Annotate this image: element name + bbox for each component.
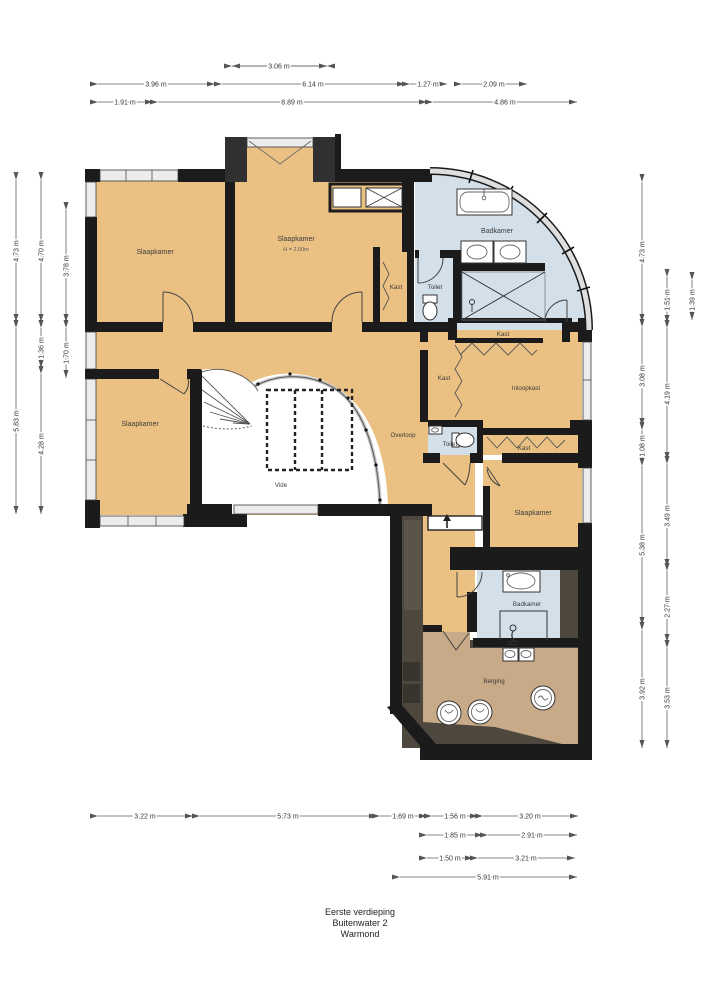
label-berging: Berging bbox=[483, 678, 505, 685]
svg-text:3.78 m: 3.78 m bbox=[64, 255, 71, 277]
dimensions-bottom: 3.22 m 5.73 m 1.69 m 1.56 m 3.20 m 1.85 … bbox=[98, 814, 578, 882]
svg-text:3.49 m: 3.49 m bbox=[665, 505, 672, 527]
label-toilet-top: Toilet bbox=[428, 284, 443, 291]
toilet-top-wc bbox=[423, 295, 437, 320]
svg-text:5.83 m: 5.83 m bbox=[14, 410, 21, 432]
sink-round-icon bbox=[531, 686, 555, 710]
svg-text:4.86 m: 4.86 m bbox=[494, 100, 516, 107]
label-slaapkamer-bl: Slaapkamer bbox=[121, 421, 159, 428]
floor-plan: Slaapkamer Slaapkamer H = 2.00m Badkamer… bbox=[0, 0, 707, 1000]
window-bottom-1 bbox=[100, 516, 184, 526]
svg-text:3.96 m: 3.96 m bbox=[145, 82, 167, 89]
title-block: Eerste verdieping Buitenwater 2 Warmond bbox=[325, 907, 395, 939]
dim-line: 3.92 m bbox=[640, 630, 647, 748]
dim-line: 2.91 m bbox=[488, 833, 577, 840]
dim-line: 4.73 m bbox=[640, 182, 647, 322]
dim-line: 4.70 m bbox=[39, 180, 46, 322]
svg-text:1.39 m: 1.39 m bbox=[690, 289, 697, 311]
svg-text:1.50 m: 1.50 m bbox=[439, 856, 461, 863]
dim-line: 3.96 m bbox=[98, 82, 215, 89]
berging-unit-1 bbox=[403, 662, 420, 681]
svg-text:2.09 m: 2.09 m bbox=[483, 82, 505, 89]
dim-line: 3.08 m bbox=[640, 327, 647, 426]
zone-dark-inner bbox=[404, 520, 421, 610]
window-left-3 bbox=[86, 379, 96, 500]
svg-text:5.91 m: 5.91 m bbox=[477, 875, 499, 882]
builtin-counter bbox=[333, 188, 361, 207]
label-slaapkamer-tm: Slaapkamer bbox=[277, 236, 315, 243]
dim-line: 3.06 m bbox=[232, 64, 327, 71]
dim-line: 1.85 m bbox=[427, 833, 483, 840]
label-badkamer-bottom: Badkamer bbox=[513, 601, 541, 608]
dim-line: 1.39 m bbox=[690, 280, 697, 320]
bathtub-bottom bbox=[503, 571, 540, 592]
dim-line: 5.91 m bbox=[400, 875, 577, 882]
svg-text:1.36 m: 1.36 m bbox=[39, 337, 46, 359]
berging-basins bbox=[503, 648, 534, 661]
label-vide: Vide bbox=[275, 482, 288, 489]
label-kast-left: Kast bbox=[438, 375, 451, 382]
svg-text:1.56 m: 1.56 m bbox=[444, 814, 466, 821]
dim-line: 4.86 m bbox=[433, 100, 577, 107]
label-height-note: H = 2.00m bbox=[283, 247, 309, 253]
svg-text:3.53 m: 3.53 m bbox=[665, 687, 672, 709]
svg-text:1.08 m: 1.08 m bbox=[640, 435, 647, 457]
dimensions-top: 3.06 m 3.96 m 6.14 m 1.27 m 2.09 m 1.91 … bbox=[98, 64, 577, 107]
svg-text:1.69 m: 1.69 m bbox=[392, 814, 414, 821]
svg-text:3.21 m: 3.21 m bbox=[515, 856, 537, 863]
svg-text:4.19 m: 4.19 m bbox=[665, 383, 672, 405]
dim-line: 3.20 m bbox=[483, 814, 578, 821]
svg-text:1.91 m: 1.91 m bbox=[114, 100, 136, 107]
dim-line: 1.36 m bbox=[39, 328, 46, 368]
double-washbasin bbox=[461, 241, 526, 263]
window-left-1 bbox=[86, 182, 96, 217]
dimensions-right: 4.73 m 3.08 m 1.08 m 5.38 m 3.92 m 1.51 … bbox=[640, 182, 697, 748]
dim-line: 2.09 m bbox=[462, 82, 527, 89]
window-left-2 bbox=[86, 332, 96, 369]
wall-bed1-bed2 bbox=[225, 182, 235, 322]
window-right-1 bbox=[583, 342, 591, 420]
dim-line: 1.08 m bbox=[640, 430, 647, 462]
svg-text:2.91 m: 2.91 m bbox=[521, 833, 543, 840]
label-slaapkamer-br: Slaapkamer bbox=[514, 510, 552, 517]
window-dormer bbox=[247, 138, 313, 147]
window-right-2 bbox=[583, 468, 591, 523]
svg-text:1.27 m: 1.27 m bbox=[417, 82, 439, 89]
wall-vide-west bbox=[190, 370, 202, 514]
svg-text:4.73 m: 4.73 m bbox=[14, 240, 21, 262]
dim-line: 1.50 m bbox=[427, 856, 473, 863]
label-toilet-mid: Toilet bbox=[443, 441, 458, 448]
dim-line: 4.73 m bbox=[14, 180, 21, 322]
zone-dark-east bbox=[560, 570, 578, 640]
dim-line: 3.78 m bbox=[64, 210, 71, 322]
builtin-closet-x bbox=[366, 188, 402, 207]
label-overloop: Overloop bbox=[390, 432, 416, 439]
label-kast-bottom: Kast bbox=[518, 445, 531, 452]
dim-line: 3.53 m bbox=[665, 648, 672, 748]
dim-line: 5.73 m bbox=[200, 814, 377, 821]
dim-line: 1.56 m bbox=[432, 814, 478, 821]
dryer-icon bbox=[468, 700, 492, 724]
dim-line: 1.91 m bbox=[98, 100, 153, 107]
title-address: Buitenwater 2 bbox=[332, 918, 387, 928]
svg-text:2.27 m: 2.27 m bbox=[665, 596, 672, 618]
loft-ladder-hatch bbox=[428, 514, 482, 530]
label-inloopkast: Inloopkast bbox=[512, 385, 540, 392]
dim-line: 8.89 m bbox=[158, 100, 427, 107]
svg-text:3.06 m: 3.06 m bbox=[268, 64, 290, 71]
svg-text:5.38 m: 5.38 m bbox=[640, 534, 647, 556]
label-kast-mid: Kast bbox=[497, 331, 510, 338]
dormer-post-right bbox=[313, 137, 335, 182]
dim-line: 4.28 m bbox=[39, 374, 46, 514]
svg-text:3.22 m: 3.22 m bbox=[134, 814, 156, 821]
dimensions-left: 4.73 m 5.83 m 4.70 m 1.36 m 4.28 m 3.78 … bbox=[14, 180, 71, 514]
dim-line: 6.14 m bbox=[222, 82, 405, 89]
svg-text:4.28 m: 4.28 m bbox=[39, 433, 46, 455]
bathtub-top bbox=[457, 189, 512, 215]
berging-unit-2 bbox=[403, 684, 420, 703]
svg-text:4.70 m: 4.70 m bbox=[39, 240, 46, 262]
svg-text:1.70 m: 1.70 m bbox=[64, 342, 71, 364]
svg-text:1.51 m: 1.51 m bbox=[665, 289, 672, 311]
dim-line: 2.27 m bbox=[665, 571, 672, 642]
label-slaapkamer-tl: Slaapkamer bbox=[136, 249, 174, 256]
window-top bbox=[100, 170, 178, 181]
label-kast-top-strip: Kast bbox=[390, 284, 403, 291]
svg-text:3.08 m: 3.08 m bbox=[640, 365, 647, 387]
title-city: Warmond bbox=[341, 929, 380, 939]
svg-text:6.14 m: 6.14 m bbox=[302, 82, 324, 89]
washer-icon bbox=[437, 701, 461, 725]
window-vide-parapet bbox=[234, 505, 318, 514]
dim-line: 1.70 m bbox=[64, 328, 71, 378]
dormer-post-left bbox=[225, 137, 247, 182]
svg-text:3.92 m: 3.92 m bbox=[640, 678, 647, 700]
svg-text:8.89 m: 8.89 m bbox=[281, 100, 303, 107]
room-slaapkamer-br bbox=[483, 460, 582, 547]
svg-text:4.73 m: 4.73 m bbox=[640, 241, 647, 263]
dim-line: 3.49 m bbox=[665, 464, 672, 567]
title-floor: Eerste verdieping bbox=[325, 907, 395, 917]
svg-text:5.73 m: 5.73 m bbox=[277, 814, 299, 821]
dim-line: 1.27 m bbox=[410, 82, 447, 89]
svg-text:3.20 m: 3.20 m bbox=[519, 814, 541, 821]
dim-line: 5.38 m bbox=[640, 466, 647, 625]
dim-line: 5.83 m bbox=[14, 328, 21, 514]
label-badkamer-top: Badkamer bbox=[481, 228, 514, 235]
dim-line: 4.19 m bbox=[665, 328, 672, 460]
dim-line: 3.21 m bbox=[478, 856, 575, 863]
svg-text:1.85 m: 1.85 m bbox=[444, 833, 466, 840]
dim-line: 1.51 m bbox=[665, 277, 672, 323]
dim-line: 1.69 m bbox=[380, 814, 427, 821]
dim-line: 3.22 m bbox=[98, 814, 193, 821]
